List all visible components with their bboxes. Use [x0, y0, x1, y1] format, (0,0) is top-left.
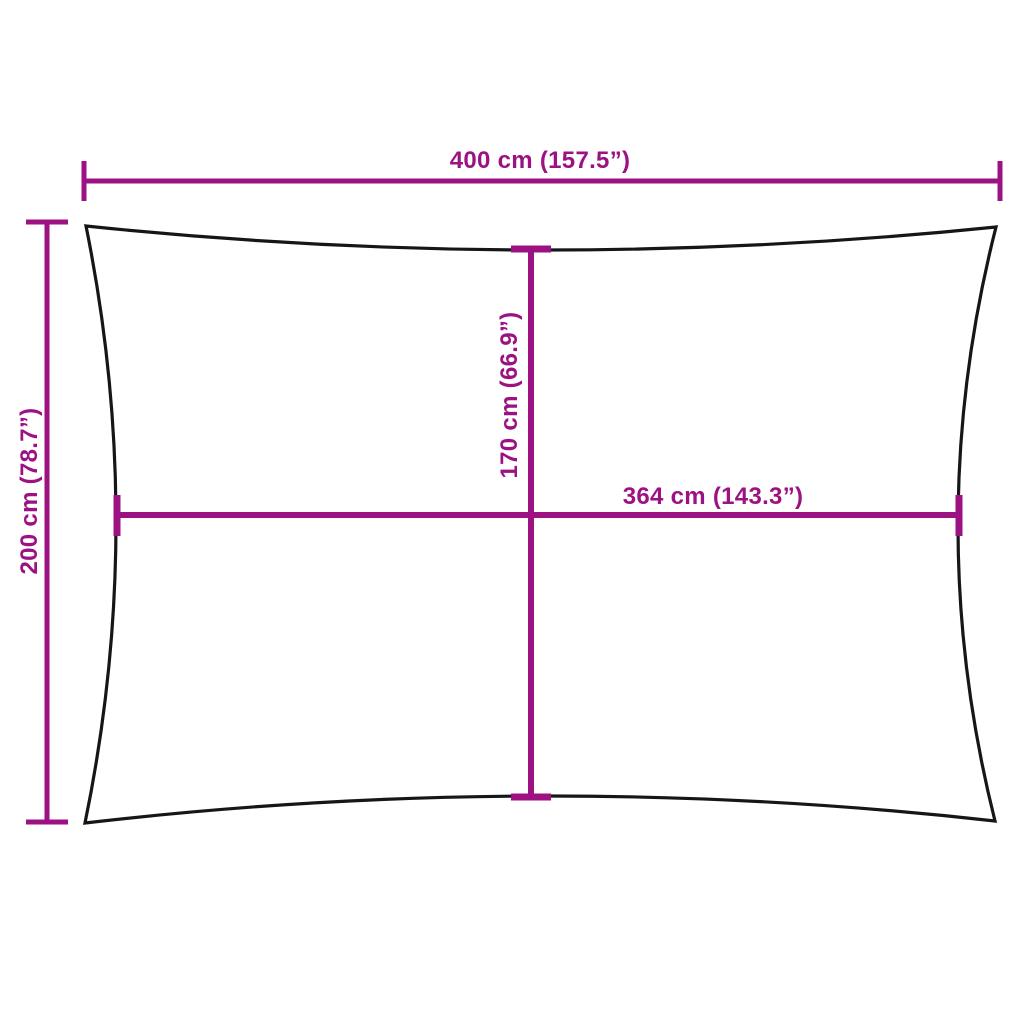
dimension-center-width: 364 cm (143.3”) [117, 483, 959, 536]
dimension-label-left-height: 200 cm (78.7”) [16, 408, 43, 575]
dimension-label-top-width: 400 cm (157.5”) [450, 147, 631, 174]
sail-outline [85, 226, 996, 823]
dimension-top-width: 400 cm (157.5”) [84, 147, 1000, 201]
dimension-label-center-height: 170 cm (66.9”) [496, 312, 523, 479]
dimension-center-height: 170 cm (66.9”) [496, 249, 551, 797]
dimension-left-height: 200 cm (78.7”) [16, 222, 68, 822]
diagram-canvas: 400 cm (157.5”) 200 cm (78.7”) 170 cm (6… [0, 0, 1024, 1024]
dimension-label-center-width: 364 cm (143.3”) [623, 483, 804, 510]
shade-sail-dimension-diagram: 400 cm (157.5”) 200 cm (78.7”) 170 cm (6… [0, 0, 1024, 1024]
